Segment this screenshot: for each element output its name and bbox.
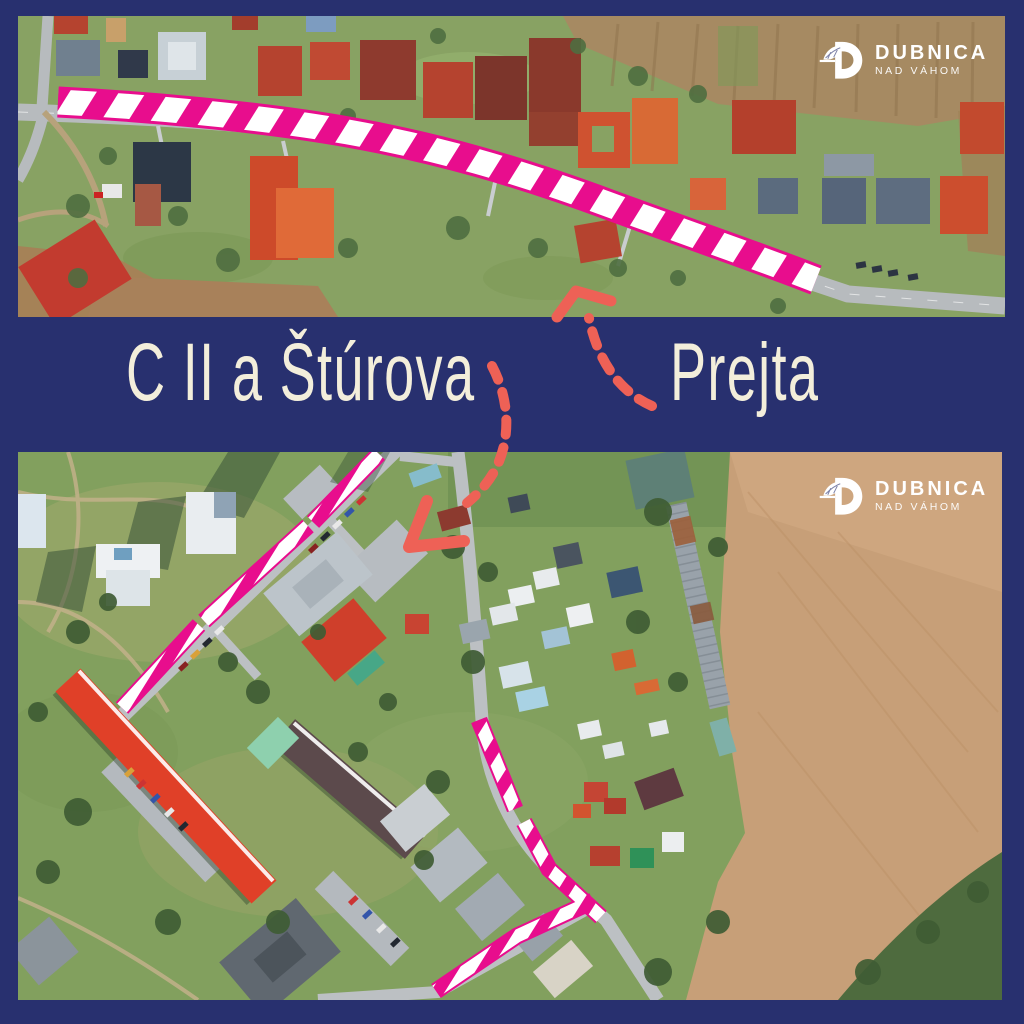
poster-canvas: C II a Štúrova Prejta DUBNICA NAD VÁHOM — [0, 0, 1024, 1024]
label-prejta: Prejta — [670, 330, 819, 416]
logo-subtitle: NAD VÁHOM — [875, 66, 988, 77]
dubnica-logo-icon — [816, 472, 866, 519]
logo-title: DUBNICA — [875, 479, 988, 499]
label-c-ii-a-sturova: C II a Štúrova — [126, 330, 475, 416]
dubnica-logo-icon — [816, 36, 866, 83]
logo-subtitle: NAD VÁHOM — [875, 502, 988, 513]
town-map-art — [18, 452, 1002, 1000]
aerial-photo-town — [18, 452, 1002, 1000]
logo-title: DUBNICA — [875, 43, 988, 63]
dubnica-logo: DUBNICA NAD VÁHOM — [816, 36, 988, 83]
dubnica-logo: DUBNICA NAD VÁHOM — [816, 472, 988, 519]
